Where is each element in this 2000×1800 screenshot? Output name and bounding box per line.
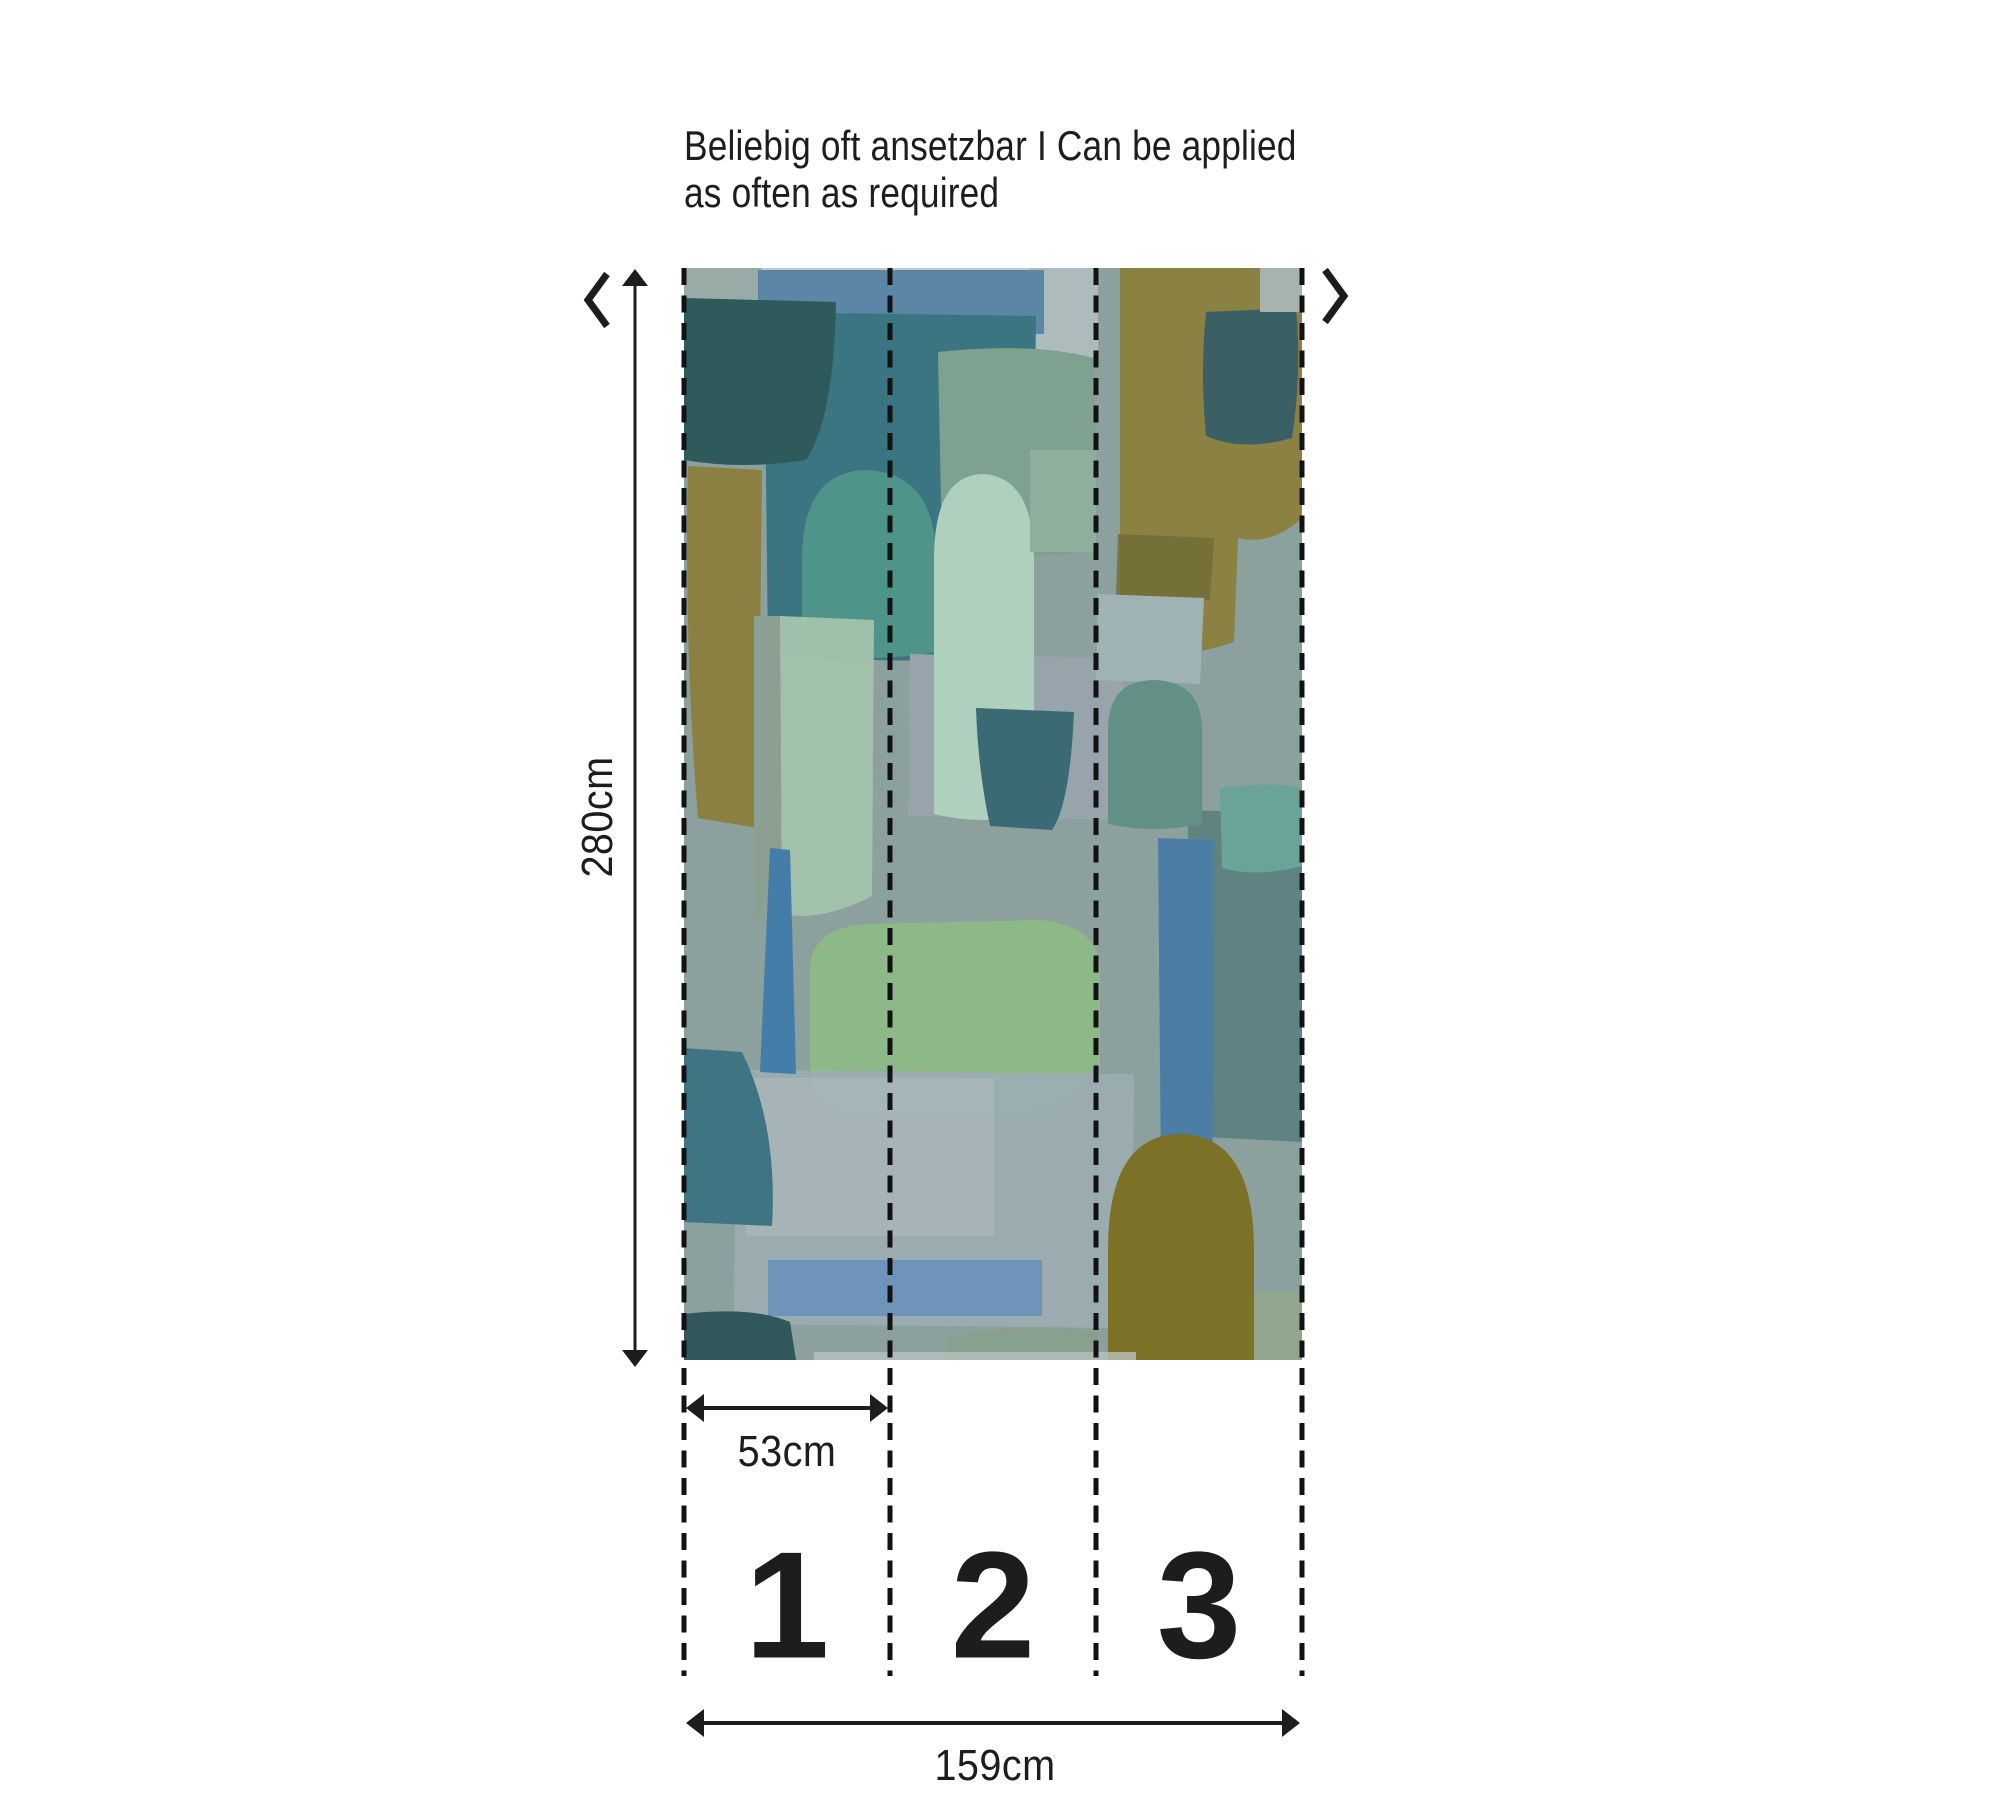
total-width-dimension-label: 159cm (934, 1741, 1055, 1791)
chevron-right-icon (1320, 266, 1350, 326)
panel-width-arrow-head-right (870, 1394, 888, 1422)
height-dimension-arrow (620, 266, 650, 1370)
height-arrow-head-bottom (622, 1350, 648, 1367)
panel-number-2: 2 (951, 1519, 1036, 1694)
diagram-page: { "note": { "line1": "Beliebig oft anset… (0, 0, 2000, 1800)
panel-width-dimension-arrow (684, 1392, 890, 1424)
height-dimension-label: 280cm (573, 756, 623, 877)
repeat-note: Beliebig oft ansetzbar I Can be applied … (684, 122, 1297, 216)
panel-number-1: 1 (745, 1519, 830, 1694)
panel-number-3: 3 (1157, 1519, 1242, 1694)
repeat-note-line1: Beliebig oft ansetzbar I Can be applied (684, 122, 1297, 169)
height-arrow-head-top (622, 269, 648, 286)
total-width-dimension-arrow (684, 1707, 1302, 1739)
total-width-arrow-head-left (686, 1709, 704, 1737)
repeat-note-line2: as often as required (684, 169, 1297, 216)
panel-width-arrow-head-left (686, 1394, 704, 1422)
panel-width-dimension-label: 53cm (738, 1427, 837, 1477)
chevron-left-icon (582, 270, 612, 330)
total-width-arrow-head-right (1282, 1709, 1300, 1737)
